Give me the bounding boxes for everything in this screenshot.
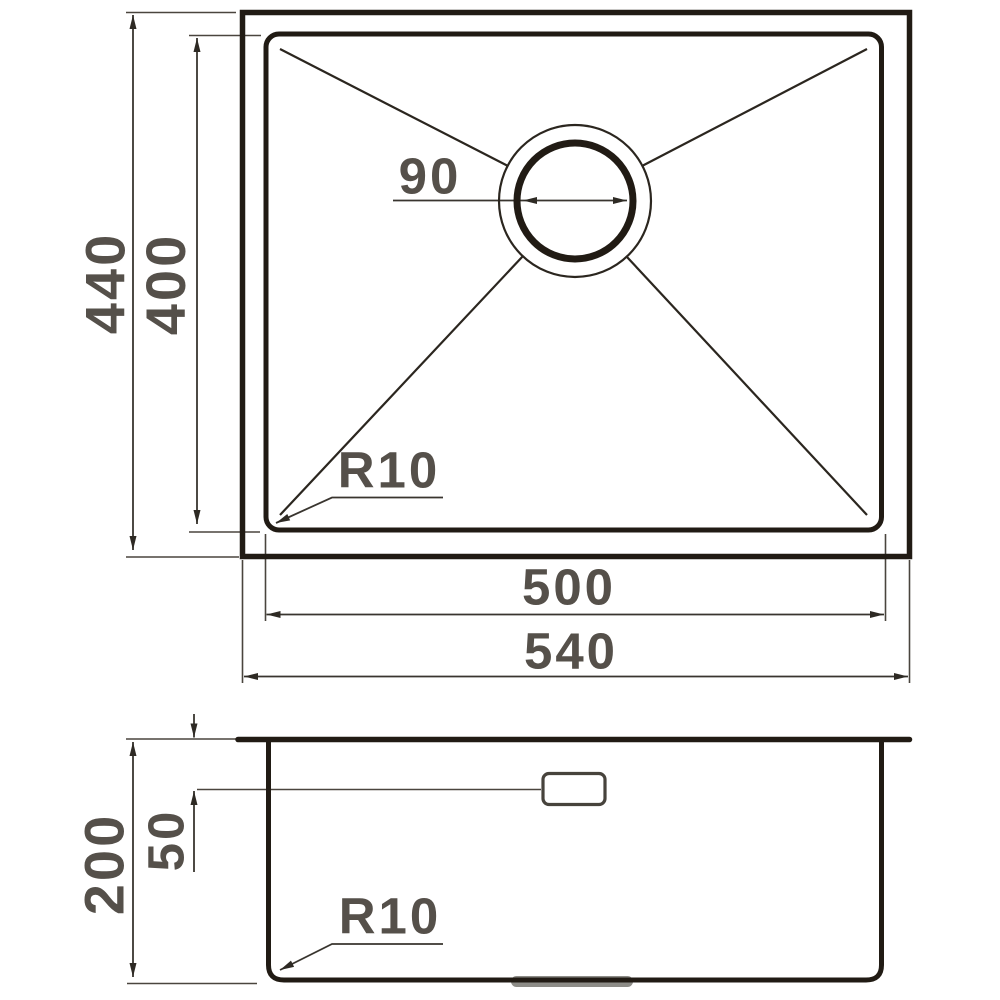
sink-dimension-drawing: 440 400 90 R10 500 540 200 50 R10 [0,0,1000,1000]
dim-label-outer-width: 540 [524,623,618,680]
dim-label-drain-diameter: 90 [399,148,462,205]
bowl-diagonal-top-right [642,49,867,166]
bowl-diagonal-bottom-right [627,257,867,515]
leader-r10-top-view [276,498,443,524]
dim-label-inner-width: 500 [522,559,616,616]
dim-label-outer-height: 440 [74,232,137,334]
leader-r10-section-view [280,944,443,970]
dim-label-corner-radius-section-view: R10 [339,888,442,945]
dim-label-corner-radius-top-view: R10 [338,442,441,499]
dim-label-inner-height: 400 [134,233,197,335]
overflow-outlet-box [543,774,605,805]
dim-label-overflow-depth: 50 [138,809,195,872]
dim-label-depth: 200 [73,813,136,915]
bowl-diagonal-top-left [280,49,508,166]
technical-drawing-svg: 440 400 90 R10 500 540 200 50 R10 [0,0,1000,1000]
